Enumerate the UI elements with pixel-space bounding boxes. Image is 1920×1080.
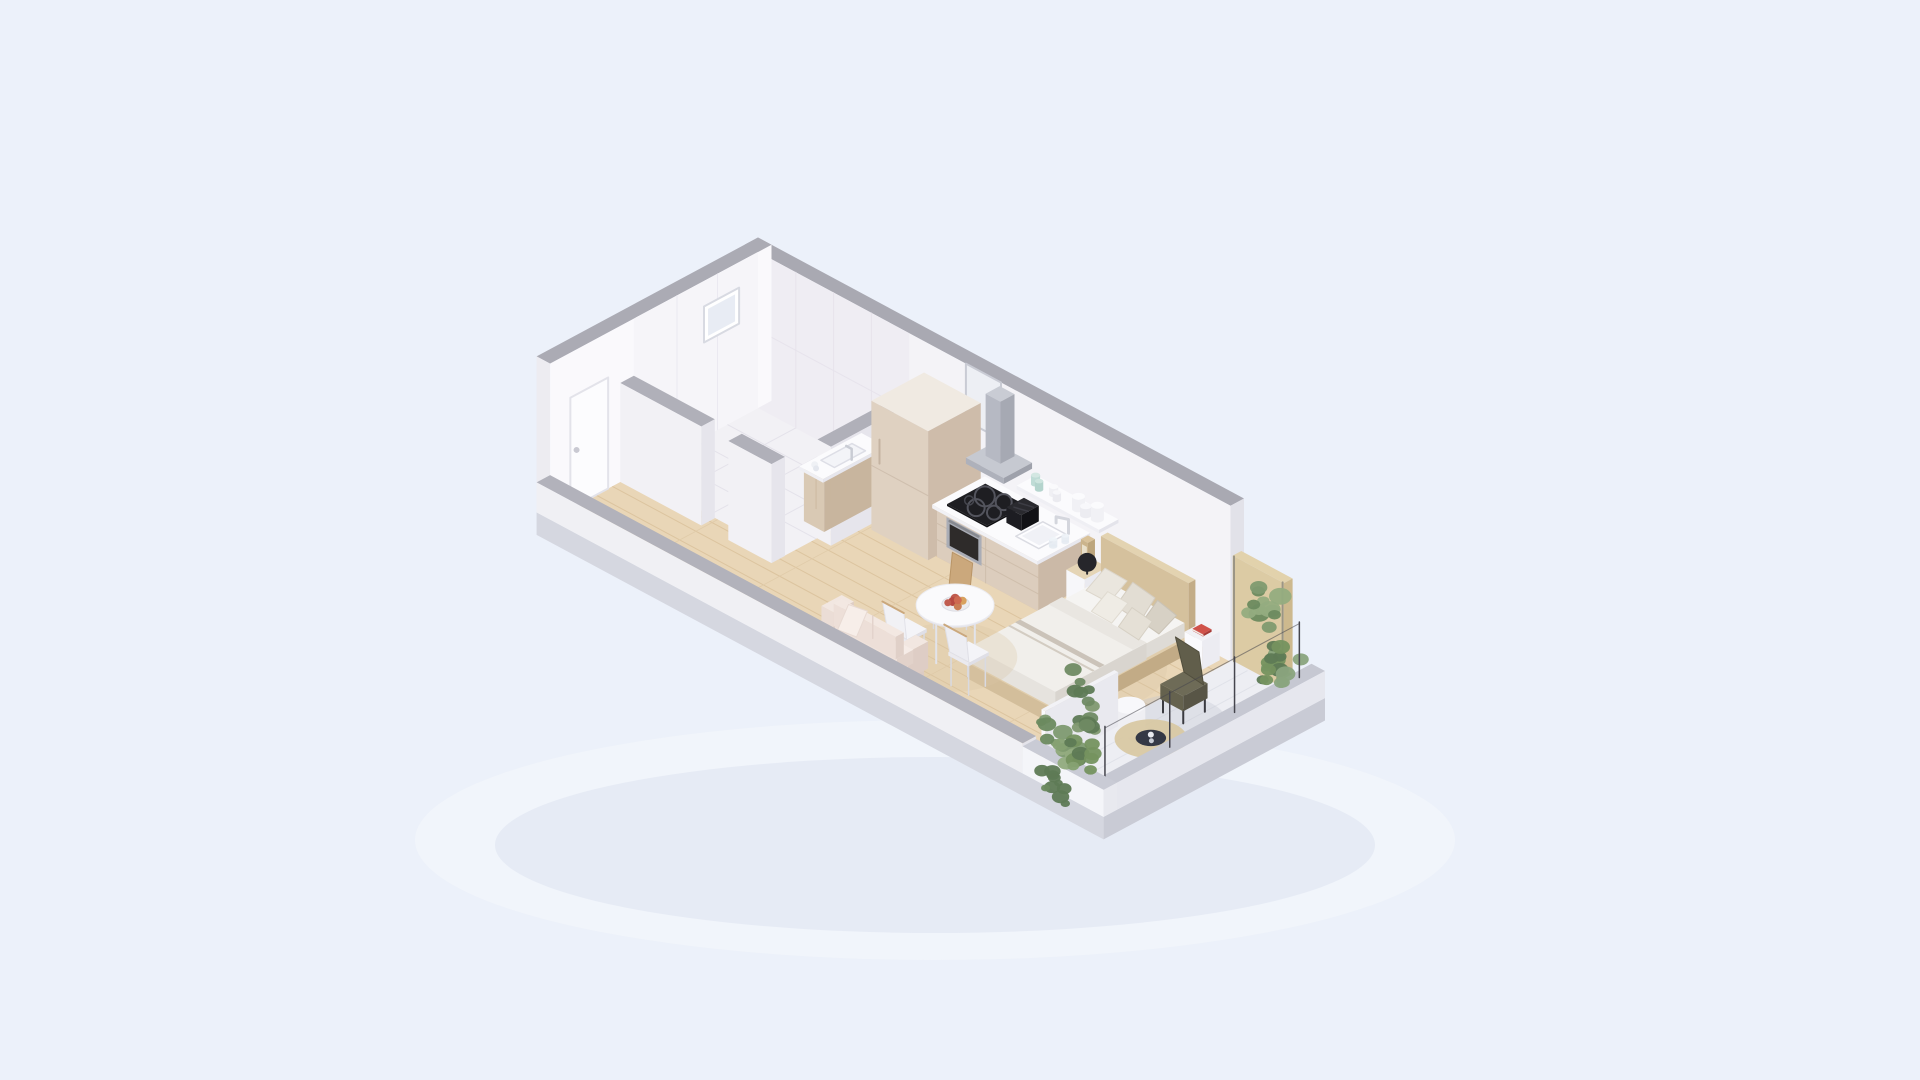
isometric-apartment-render [0,0,1920,1080]
range-hood-chimney [986,386,1015,464]
bathroom-partition-a2 [728,434,785,563]
floorplan-canvas [0,0,1920,1080]
white-cup-2 [1053,490,1061,502]
white-jar-2 [1080,503,1091,518]
entry-door-knob [574,447,580,453]
bedside-lamp-sphere [1078,553,1097,572]
teal-cup-2 [1035,479,1043,492]
ground-shadow [495,757,1375,933]
white-jar-3 [1091,502,1104,523]
drinking-glass-1 [1049,537,1057,549]
drinking-glass-2 [1061,534,1069,545]
